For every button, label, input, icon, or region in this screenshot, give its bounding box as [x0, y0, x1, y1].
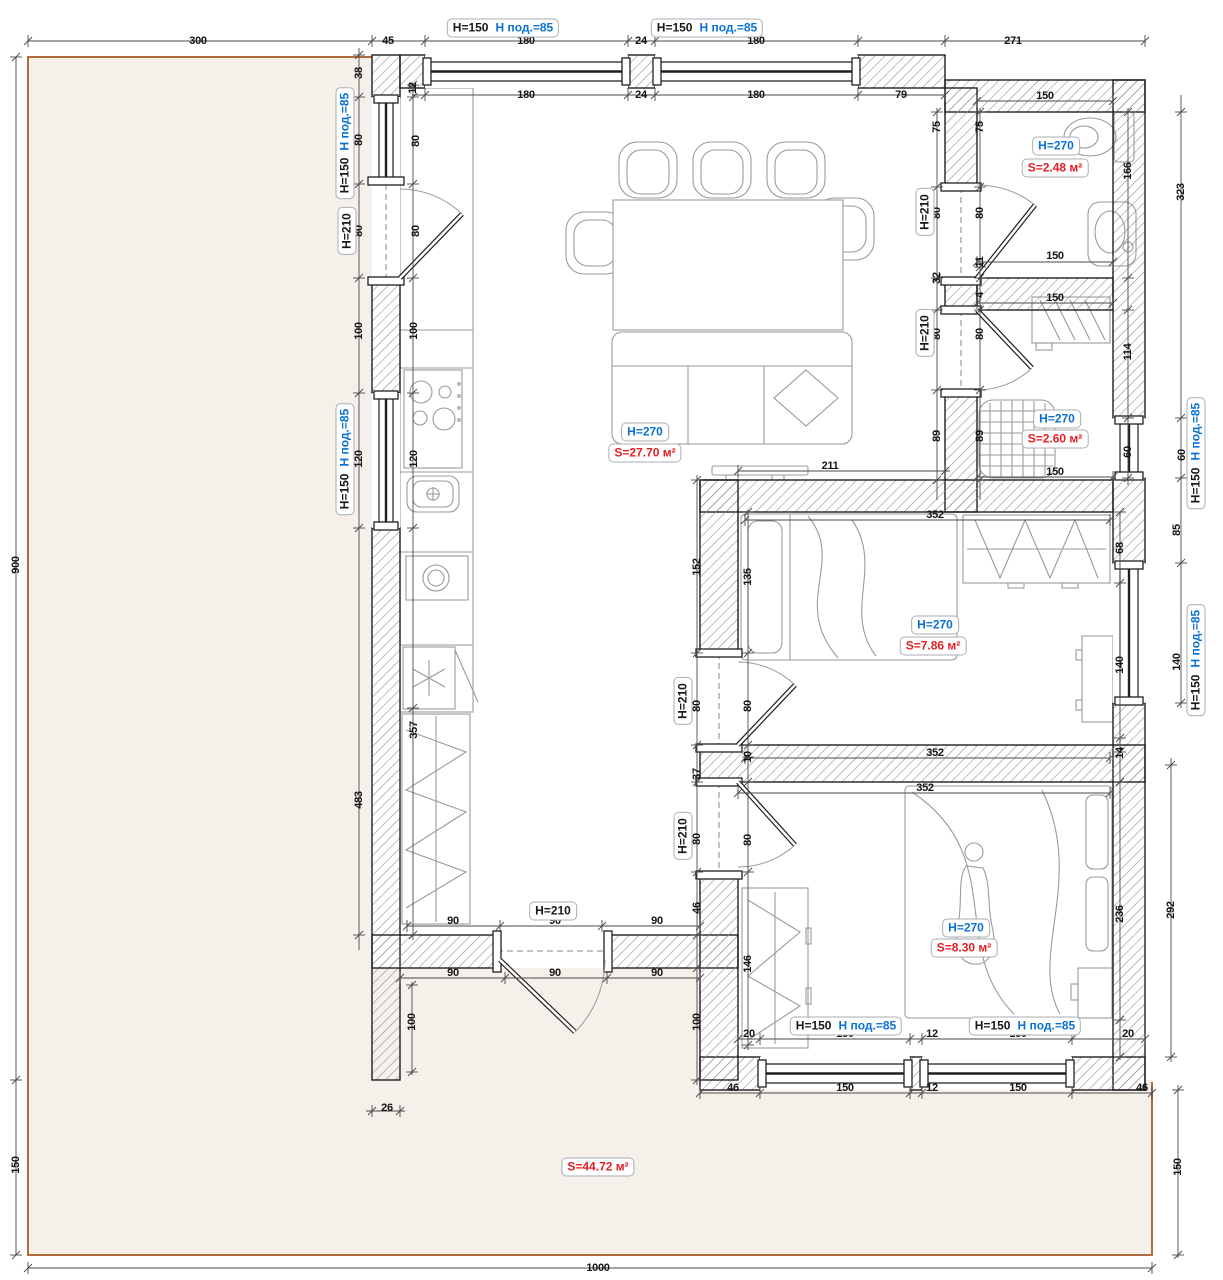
dimension-label: 166	[1122, 162, 1134, 179]
label-text: S=27.70 м²	[614, 445, 675, 462]
room-area-label-bedroom-1: S=7.86 м²	[900, 637, 967, 656]
label-text: S=44.72 м²	[567, 1159, 628, 1176]
window-height-label: H=150H под.=85	[447, 19, 559, 38]
dimension-label: 180	[747, 89, 764, 101]
dimension-label: 150	[836, 1082, 853, 1094]
dimension-label: 292	[1165, 901, 1177, 918]
dimension-label: 89	[974, 430, 986, 442]
room-area-label-living-room: S=27.70 м²	[608, 444, 681, 463]
room-height-label-shower-room: H=270	[1033, 410, 1081, 429]
dimension-label: 150	[1046, 466, 1063, 478]
label-text: H под.=85	[1188, 403, 1205, 461]
dimension-label: 150	[1036, 90, 1053, 102]
dimension-label: 80	[742, 700, 754, 712]
dimension-label: 80	[410, 225, 422, 237]
dimension-label: 146	[742, 955, 754, 972]
room-area-label-shower-room: S=2.60 м²	[1022, 430, 1089, 449]
window-height-label: H=150H под.=85	[336, 87, 355, 199]
dimension-label: 135	[742, 568, 754, 585]
label-text: H=150	[337, 158, 354, 194]
door-height-label: H=210	[674, 812, 693, 860]
dimension-label: 150	[1009, 1082, 1026, 1094]
dimension-label: 114	[1122, 344, 1134, 361]
window-height-label: H=150H под.=85	[651, 19, 763, 38]
dimension-label: 24	[635, 89, 647, 101]
label-text: H=150	[1188, 675, 1205, 711]
dimension-label: 236	[1114, 905, 1126, 922]
window-height-label: H=150H под.=85	[1187, 604, 1206, 716]
dimension-label: 4	[974, 292, 986, 298]
dimension-label: 11	[974, 256, 986, 267]
dimension-label: 90	[651, 967, 663, 979]
dimension-label: 900	[10, 556, 22, 573]
dimension-label: 120	[408, 450, 420, 467]
dimension-label: 46	[1136, 1082, 1148, 1094]
door-height-label: H=210	[916, 309, 935, 357]
room-area-label-bathroom: S=2.48 м²	[1022, 159, 1089, 178]
label-text: H=150	[975, 1018, 1011, 1035]
dimension-label: 352	[926, 747, 943, 759]
label-text: S=7.86 м²	[906, 638, 961, 655]
dimension-label: 75	[931, 121, 943, 133]
label-text: H=210	[917, 194, 934, 230]
dimension-label: 26	[381, 1102, 393, 1114]
dimension-label: 150	[1046, 292, 1063, 304]
label-text: H=270	[1038, 138, 1074, 155]
window-height-label: H=150H под.=85	[336, 403, 355, 515]
dimension-label: 100	[408, 322, 420, 339]
dimension-label: 37	[691, 768, 703, 780]
door-height-label: H=210	[529, 902, 577, 921]
dimension-label: 80	[974, 328, 986, 340]
window-height-label: H=150H под.=85	[790, 1017, 902, 1036]
dimension-label: 300	[189, 35, 206, 47]
label-text: H под.=85	[337, 93, 354, 151]
dimension-label: 80	[410, 135, 422, 147]
dimension-label: 323	[1175, 183, 1187, 200]
dimension-label: 150	[10, 1156, 22, 1173]
window-height-label: H=150H под.=85	[1187, 397, 1206, 509]
dimension-label: 60	[1122, 446, 1134, 458]
label-text: H под.=85	[1017, 1018, 1075, 1035]
room-height-label-bedroom-2: H=270	[942, 919, 990, 938]
dimension-label: 90	[447, 915, 459, 927]
label-text: S=2.48 м²	[1028, 160, 1083, 177]
door-height-label: H=210	[338, 207, 357, 255]
dimension-label: 79	[895, 89, 907, 101]
dimension-label: 89	[931, 430, 943, 442]
label-text: S=8.30 м²	[937, 940, 992, 957]
dimension-label: 85	[1171, 524, 1183, 536]
dimension-label: 45	[382, 35, 394, 47]
dimension-label: 75	[974, 121, 986, 133]
dimension-label: 10	[742, 751, 754, 763]
dimension-label: 150	[1046, 250, 1063, 262]
label-text: H=150	[796, 1018, 832, 1035]
dimension-label: 271	[1004, 35, 1021, 47]
label-text: H под.=85	[838, 1018, 896, 1035]
dimension-label: 152	[691, 558, 703, 575]
dimension-label: 211	[822, 460, 839, 472]
label-text: H под.=85	[699, 20, 757, 37]
label-text: H=150	[657, 20, 693, 37]
label-text: H под.=85	[1188, 610, 1205, 668]
room-height-label-bathroom: H=270	[1032, 137, 1080, 156]
door-height-label: H=210	[916, 188, 935, 236]
dimension-label: 38	[353, 67, 365, 79]
dimension-label: 100	[353, 322, 365, 339]
dimension-label: 20	[743, 1028, 755, 1040]
dimension-label: 140	[1114, 656, 1126, 673]
label-text: H=270	[627, 424, 663, 441]
dimension-label: 20	[1122, 1028, 1134, 1040]
dimension-label: 150	[1172, 1158, 1184, 1175]
terrace-area-label: S=44.72 м²	[561, 1158, 634, 1177]
dimension-label: 357	[408, 721, 420, 738]
dimension-label: 68	[1114, 542, 1126, 554]
dimension-label: 46	[691, 902, 703, 914]
dimension-label: 140	[1171, 653, 1183, 670]
dimension-label: 90	[549, 967, 561, 979]
dimension-label: 100	[691, 1013, 703, 1030]
label-text: H=150	[453, 20, 489, 37]
label-text: H под.=85	[495, 20, 553, 37]
dimension-label: 352	[926, 509, 943, 521]
floor-plan: 3004518024180271180241807938808010012048…	[0, 0, 1223, 1280]
room-height-label-living-room: H=270	[621, 423, 669, 442]
label-text: H=210	[917, 315, 934, 351]
dimension-label: 12	[926, 1028, 938, 1040]
dimension-label: 120	[353, 450, 365, 467]
dimension-label: 180	[517, 89, 534, 101]
room-height-label-bedroom-1: H=270	[911, 616, 959, 635]
dimension-label: 14	[1114, 747, 1126, 759]
label-text: H=150	[337, 474, 354, 510]
dimension-label: 100	[406, 1013, 418, 1030]
label-text: H=270	[917, 617, 953, 634]
label-text: H=210	[675, 683, 692, 719]
dimension-label: 46	[727, 1082, 739, 1094]
dimension-label: 12	[407, 82, 419, 94]
label-text: H=150	[1188, 468, 1205, 504]
dimension-label: 1000	[586, 1262, 609, 1274]
dimension-label: 80	[974, 207, 986, 219]
label-text: H=210	[675, 818, 692, 854]
dimension-label: 12	[926, 1082, 938, 1094]
room-area-label-bedroom-2: S=8.30 м²	[931, 939, 998, 958]
dimension-label: 90	[651, 915, 663, 927]
dimension-label: 352	[916, 782, 933, 794]
dimension-label: 80	[353, 134, 365, 146]
label-text: H под.=85	[337, 409, 354, 467]
dimension-label: 483	[353, 791, 365, 808]
label-text: H=210	[535, 903, 571, 920]
dimension-label: 24	[635, 35, 647, 47]
dimension-label: 80	[691, 833, 703, 845]
dimension-label: 80	[742, 834, 754, 846]
label-text: S=2.60 м²	[1028, 431, 1083, 448]
label-text: H=270	[1039, 411, 1075, 428]
label-text: H=210	[339, 213, 356, 249]
dimension-label: 90	[447, 967, 459, 979]
dimension-label: 32	[931, 272, 943, 284]
window-height-label: H=150H под.=85	[969, 1017, 1081, 1036]
door-height-label: H=210	[674, 677, 693, 725]
labels-layer: 3004518024180271180241807938808010012048…	[0, 0, 1223, 1280]
label-text: H=270	[948, 920, 984, 937]
dimension-label: 80	[691, 700, 703, 712]
